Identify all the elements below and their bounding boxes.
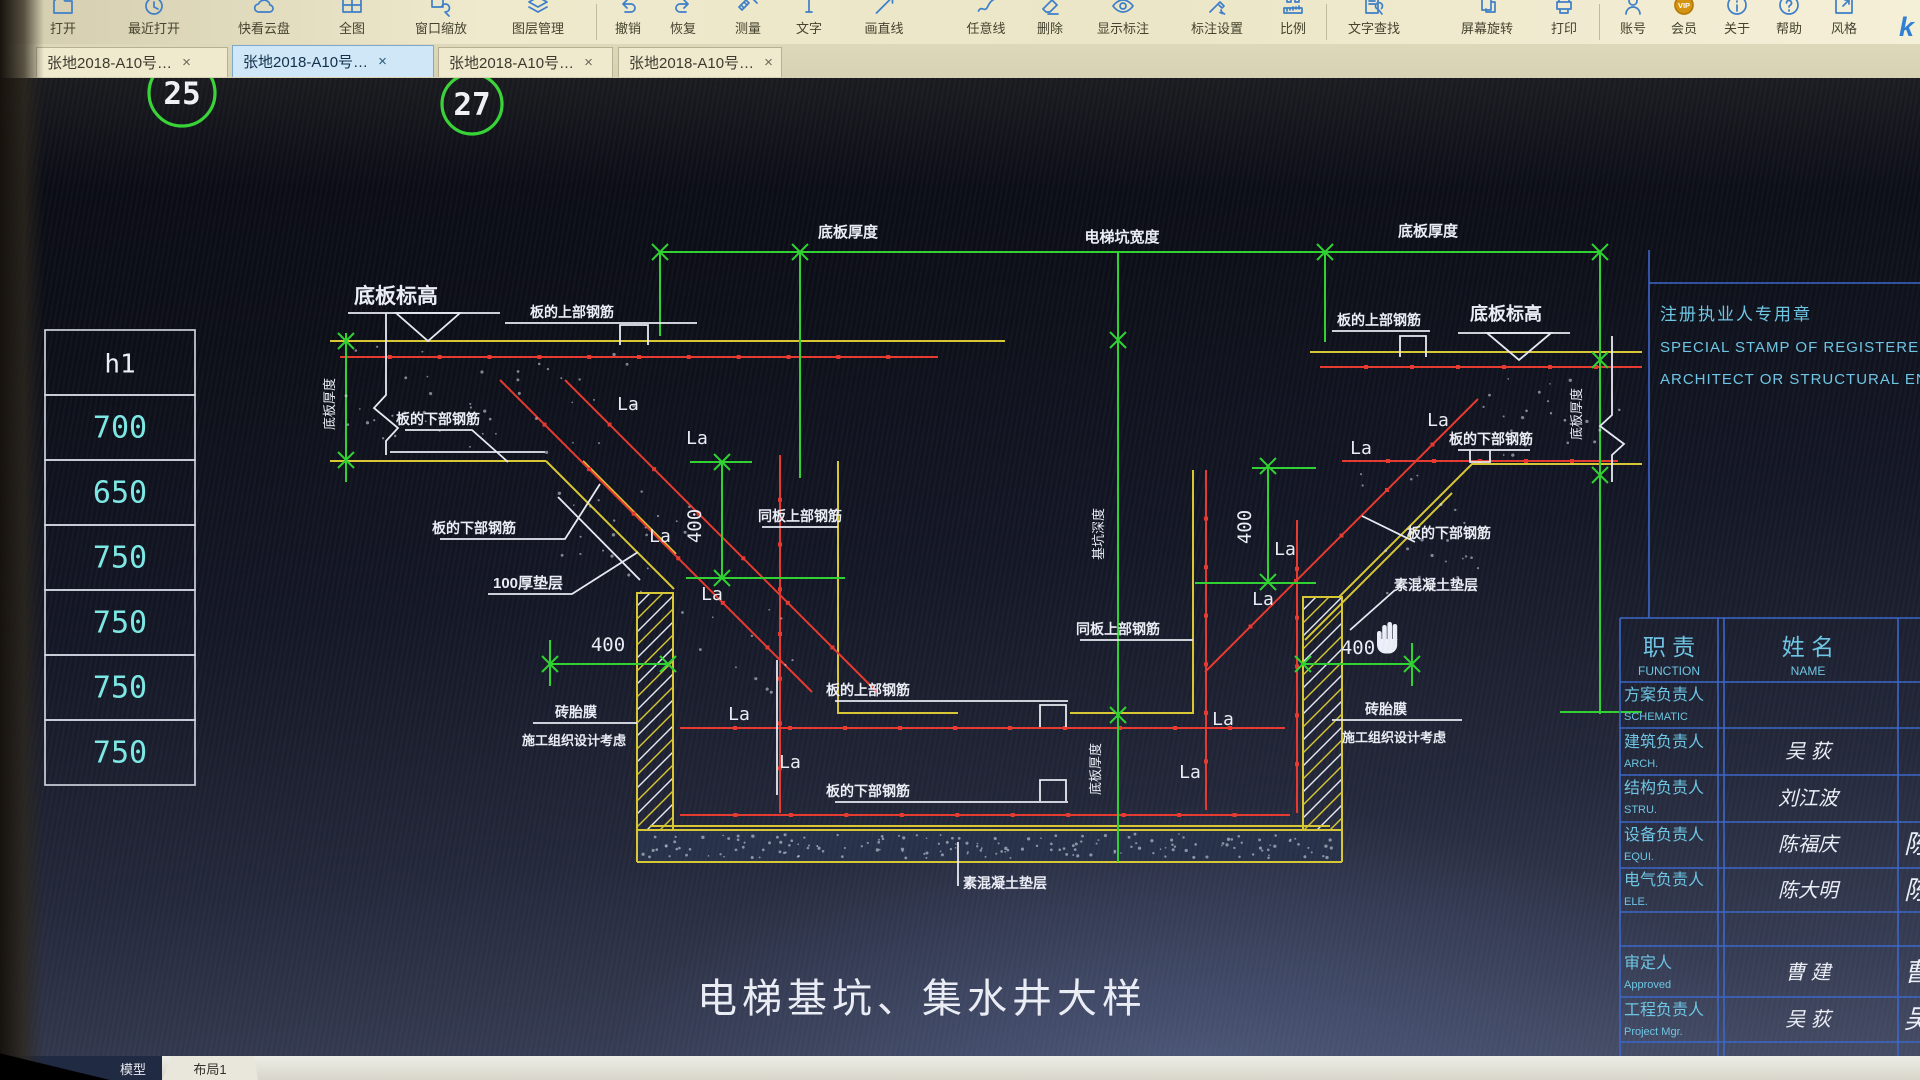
cad-label: 板的下部钢筋 (396, 411, 480, 427)
toolbar-button-22[interactable]: 关于 (1724, 0, 1750, 44)
folder-icon (51, 0, 75, 17)
tab-bar: 张地2018-A10号…×张地2018-A10号…×张地2018-A10号…×张… (0, 44, 1920, 78)
rotate-icon (1475, 0, 1499, 17)
toolbar-button-13[interactable]: 删除 (1037, 0, 1063, 44)
cad-label: 砖胎膜 (555, 704, 597, 720)
cad-label: La (1179, 762, 1201, 783)
toolbar-label: 删除 (1037, 18, 1063, 37)
cad-label: 素混凝土垫层 (1394, 577, 1478, 593)
cad-label: 400 (684, 509, 706, 543)
title-block-role-en: ELE. (1624, 896, 1648, 908)
toolbar-button-1[interactable]: 打开 (50, 0, 76, 44)
toolbar-label: 最近打开 (128, 18, 180, 37)
cad-label: 底板厚度 (1088, 743, 1103, 795)
measure-icon (736, 0, 760, 17)
cad-label: 板的上部钢筋 (826, 682, 910, 698)
toolbar-label: 快看云盘 (238, 18, 290, 37)
title-block-signature: 吴 (1904, 1004, 1920, 1034)
drawing-svg: 2527 h1700650750750750750 注册执业人专用章SPECIA… (0, 0, 1920, 1080)
title-block-role-en: STRU. (1624, 804, 1657, 816)
tab-label: 张地2018-A10号… (449, 52, 574, 73)
cad-label: 100厚垫层 (493, 574, 563, 592)
title-block-name: 刘江波 (1778, 788, 1841, 810)
pit-wall-left (637, 593, 673, 830)
cad-label: 板的上部钢筋 (1337, 312, 1421, 328)
title-block-role-en: Approved (1624, 979, 1671, 991)
toolbar-button-18[interactable]: 屏幕旋转 (1461, 0, 1513, 44)
toolbar-button-21[interactable]: VIP会员 (1671, 0, 1697, 44)
title-block-name: 陈大明 (1778, 880, 1841, 902)
title-block-role: 设备负责人 (1624, 826, 1704, 844)
stamp-text: SPECIAL STAMP OF REGISTERED (1660, 339, 1920, 356)
title-block-signature: 陈 (1904, 829, 1920, 859)
cad-label: La (686, 428, 708, 449)
cad-label: 400 (1234, 510, 1256, 544)
toolbar-label: 撤销 (615, 18, 641, 37)
title-block-role: 方案负责人 (1624, 686, 1704, 704)
svg-text:25: 25 (163, 76, 200, 112)
document-tab-3[interactable]: 张地2018-A10号…× (438, 47, 613, 77)
document-tab-1[interactable]: 张地2018-A10号…× (36, 47, 228, 77)
toolbar-label: 会员 (1671, 18, 1697, 37)
title-block-name: 曹 建 (1785, 962, 1834, 984)
level-symbol-left (396, 313, 460, 341)
vip-icon: VIP (1672, 0, 1696, 17)
title-block-name: 吴 荻 (1785, 1009, 1834, 1031)
toolbar-label: 帮助 (1776, 18, 1802, 37)
toolbar-button-11[interactable]: 画直线 (864, 0, 903, 44)
stamp-text: 注册执业人专用章 (1660, 305, 1812, 324)
freeline-icon (974, 0, 998, 17)
toolbar-separator (596, 4, 597, 40)
toolbar-button-17[interactable]: 文字查找 (1348, 0, 1400, 44)
h1-table-value: 750 (93, 606, 147, 641)
hand-cursor-icon (1377, 622, 1397, 654)
toolbar-button-6[interactable]: 图层管理 (512, 0, 564, 44)
toolbar-label: 任意线 (966, 18, 1005, 37)
svg-text:27: 27 (453, 87, 490, 123)
cad-label: 底板标高 (354, 284, 438, 308)
cad-label: La (1350, 438, 1372, 459)
tab-close-icon[interactable]: × (182, 54, 191, 71)
toolbar-label: 比例 (1280, 18, 1306, 37)
left-data-table: h1700650750750750750 (45, 330, 195, 785)
h1-table-header: h1 (104, 350, 135, 380)
redo-icon (671, 0, 695, 17)
cloud-icon (252, 0, 276, 17)
cad-label: La (779, 752, 801, 773)
title-block-role-en: EQUI. (1624, 851, 1654, 863)
detail-bubble-27: 27 (442, 74, 502, 134)
cad-label: 底板厚度 (818, 223, 879, 241)
toolbar-button-2[interactable]: 最近打开 (128, 0, 180, 44)
toolbar-button-23[interactable]: 帮助 (1776, 0, 1802, 44)
title-block-role: 审定人 (1624, 954, 1672, 972)
scale-icon (1281, 0, 1305, 17)
cad-label: 板的下部钢筋 (432, 520, 516, 536)
cad-label: La (1252, 589, 1274, 610)
toolbar-button-16[interactable]: 比例 (1280, 0, 1306, 44)
undo-icon (616, 0, 640, 17)
toolbar-button-14[interactable]: 显示标注 (1097, 0, 1149, 44)
cad-label: 同板上部钢筋 (758, 508, 842, 524)
h1-table-value: 750 (93, 736, 147, 771)
eye-icon (1111, 0, 1135, 17)
pit-wall-right (1303, 597, 1342, 830)
toolbar-button-12[interactable]: 任意线 (966, 0, 1005, 44)
annotation-lines (348, 313, 1624, 886)
toolbar-label: 恢复 (670, 18, 696, 37)
toolbar-label: 画直线 (864, 18, 903, 37)
app-logo: k (1899, 12, 1914, 43)
cad-label: La (728, 704, 750, 725)
title-block-role: 电气负责人 (1624, 871, 1704, 889)
title-block-header: 姓 名 (1782, 634, 1834, 660)
document-tab-2[interactable]: 张地2018-A10号…× (232, 45, 434, 77)
title-block-role: 结构负责人 (1624, 779, 1704, 797)
person-icon (1621, 0, 1645, 17)
document-tab-4[interactable]: 张地2018-A10号…× (618, 47, 782, 77)
cad-label: 施工组织设计考虑 (1342, 730, 1446, 745)
status-bar: 模型 布局1 (0, 1056, 1920, 1080)
title-block-role: 建筑负责人 (1624, 733, 1704, 751)
h1-table-value: 750 (93, 541, 147, 576)
title-block-header-en: NAME (1791, 664, 1826, 678)
cad-label: La (649, 526, 671, 547)
info-icon (1725, 0, 1749, 17)
cad-label: 砖胎膜 (1365, 701, 1407, 717)
gearpen-icon (1205, 0, 1229, 17)
tab-label: 张地2018-A10号… (47, 52, 172, 73)
cad-label: La (1212, 709, 1234, 730)
cad-label: 同板上部钢筋 (1076, 621, 1160, 637)
cad-label: 基坑深度 (1091, 508, 1106, 560)
toolbar-label: 打开 (50, 18, 76, 37)
zoomwin-icon (429, 0, 453, 17)
cad-label: 电梯坑宽度 (1084, 228, 1160, 246)
tab-close-icon[interactable]: × (378, 53, 387, 70)
title-block-name: 陈福庆 (1778, 834, 1841, 856)
style-icon (1832, 0, 1856, 17)
title-block-role-en: ARCH. (1624, 758, 1658, 770)
toolbar-button-3[interactable]: 快看云盘 (238, 0, 290, 44)
toolbar-label: 测量 (735, 18, 761, 37)
tab-label: 张地2018-A10号… (243, 51, 368, 72)
toolbar-button-8[interactable]: 恢复 (670, 0, 696, 44)
toolbar-label: 文字 (796, 18, 822, 37)
cad-label: 板的下部钢筋 (1449, 431, 1533, 447)
toolbar: 打开最近打开快看云盘全图窗口缩放图层管理撤销恢复测量文字画直线任意线删除显示标注… (0, 0, 1920, 44)
cad-label: 底板厚度 (1569, 388, 1584, 440)
cad-label: La (701, 584, 723, 605)
cad-label: La (1274, 539, 1296, 560)
title-block: 注册执业人专用章SPECIAL STAMP OF REGISTEREDARCHI… (1620, 250, 1920, 1056)
question-icon (1777, 0, 1801, 17)
toolbar-button-15[interactable]: 标注设置 (1191, 0, 1243, 44)
toolbar-label: 图层管理 (512, 18, 564, 37)
toolbar-button-5[interactable]: 窗口缩放 (415, 0, 467, 44)
print-icon (1552, 0, 1576, 17)
toolbar-label: 打印 (1551, 18, 1577, 37)
title-block-name: 吴 荻 (1785, 741, 1834, 763)
toolbar-label: 标注设置 (1191, 18, 1243, 37)
text-icon (797, 0, 821, 17)
toolbar-separator (1326, 4, 1327, 40)
toolbar-label: 显示标注 (1097, 18, 1149, 37)
drawing-title: 电梯基坑、集水井大样 (697, 977, 1147, 1021)
title-block-role-en: SCHEMATIC (1624, 711, 1688, 723)
toolbar-button-9[interactable]: 测量 (735, 0, 761, 44)
title-block-signature: 陈 (1904, 875, 1920, 905)
app-window: 打开最近打开快看云盘全图窗口缩放图层管理撤销恢复测量文字画直线任意线删除显示标注… (0, 0, 1920, 1080)
title-block-role: 工程负责人 (1624, 1001, 1704, 1019)
cad-canvas[interactable]: 2527 h1700650750750750750 注册执业人专用章SPECIA… (0, 78, 1920, 1056)
h1-table-value: 750 (93, 671, 147, 706)
level-symbol-right (1487, 333, 1551, 360)
title-block-role-en: Project Mgr. (1624, 1026, 1683, 1038)
title-block-header: 职 责 (1643, 634, 1695, 660)
toolbar-label: 全图 (339, 18, 365, 37)
fullmap-icon (340, 0, 364, 17)
findtext-icon (1362, 0, 1386, 17)
toolbar-button-20[interactable]: 账号 (1620, 0, 1646, 44)
tab-close-icon[interactable]: × (584, 54, 593, 71)
line-icon (872, 0, 896, 17)
eraser-icon (1038, 0, 1062, 17)
clock-icon (142, 0, 166, 17)
cad-label: 板的下部钢筋 (826, 783, 910, 799)
cad-label: 400 (591, 634, 625, 656)
cad-label: 底板厚度 (322, 378, 337, 430)
toolbar-label: 账号 (1620, 18, 1646, 37)
title-block-signature: 曹 (1904, 957, 1920, 987)
cad-label: 底板标高 (1470, 303, 1542, 324)
h1-table-value: 650 (93, 476, 147, 511)
svg-text:VIP: VIP (1678, 1, 1690, 10)
toolbar-label: 文字查找 (1348, 18, 1400, 37)
toolbar-button-24[interactable]: 风格 (1831, 0, 1857, 44)
toolbar-button-7[interactable]: 撤销 (615, 0, 641, 44)
toolbar-button-19[interactable]: 打印 (1551, 0, 1577, 44)
cad-label: 板的上部钢筋 (530, 304, 614, 320)
toolbar-label: 关于 (1724, 18, 1750, 37)
cad-label: 施工组织设计考虑 (522, 733, 626, 748)
cad-label: 底板厚度 (1398, 222, 1459, 240)
wall-hatch-left (400, 593, 897, 830)
cad-label: 400 (1341, 637, 1375, 659)
title-block-header-en: FUNCTION (1638, 664, 1700, 678)
tab-label: 张地2018-A10号… (629, 52, 754, 73)
toolbar-separator (1599, 4, 1600, 40)
toolbar-button-10[interactable]: 文字 (796, 0, 822, 44)
dimension-lines (346, 252, 1642, 862)
cad-label: 板的下部钢筋 (1407, 525, 1491, 541)
toolbar-label: 窗口缩放 (415, 18, 467, 37)
layers-icon (526, 0, 550, 17)
cad-label: La (617, 394, 639, 415)
tab-close-icon[interactable]: × (764, 54, 773, 71)
toolbar-label: 风格 (1831, 18, 1857, 37)
cad-label: 素混凝土垫层 (963, 875, 1047, 891)
layout-tab[interactable]: 布局1 (162, 1056, 258, 1080)
cad-label: La (1427, 410, 1449, 431)
model-space-label[interactable]: 模型 (0, 1056, 162, 1080)
stamp-text: ARCHITECT OR STRUCTURAL ENGINEER (1660, 371, 1920, 388)
h1-table-value: 700 (93, 411, 147, 446)
toolbar-button-4[interactable]: 全图 (339, 0, 365, 44)
toolbar-label: 屏幕旋转 (1461, 18, 1513, 37)
